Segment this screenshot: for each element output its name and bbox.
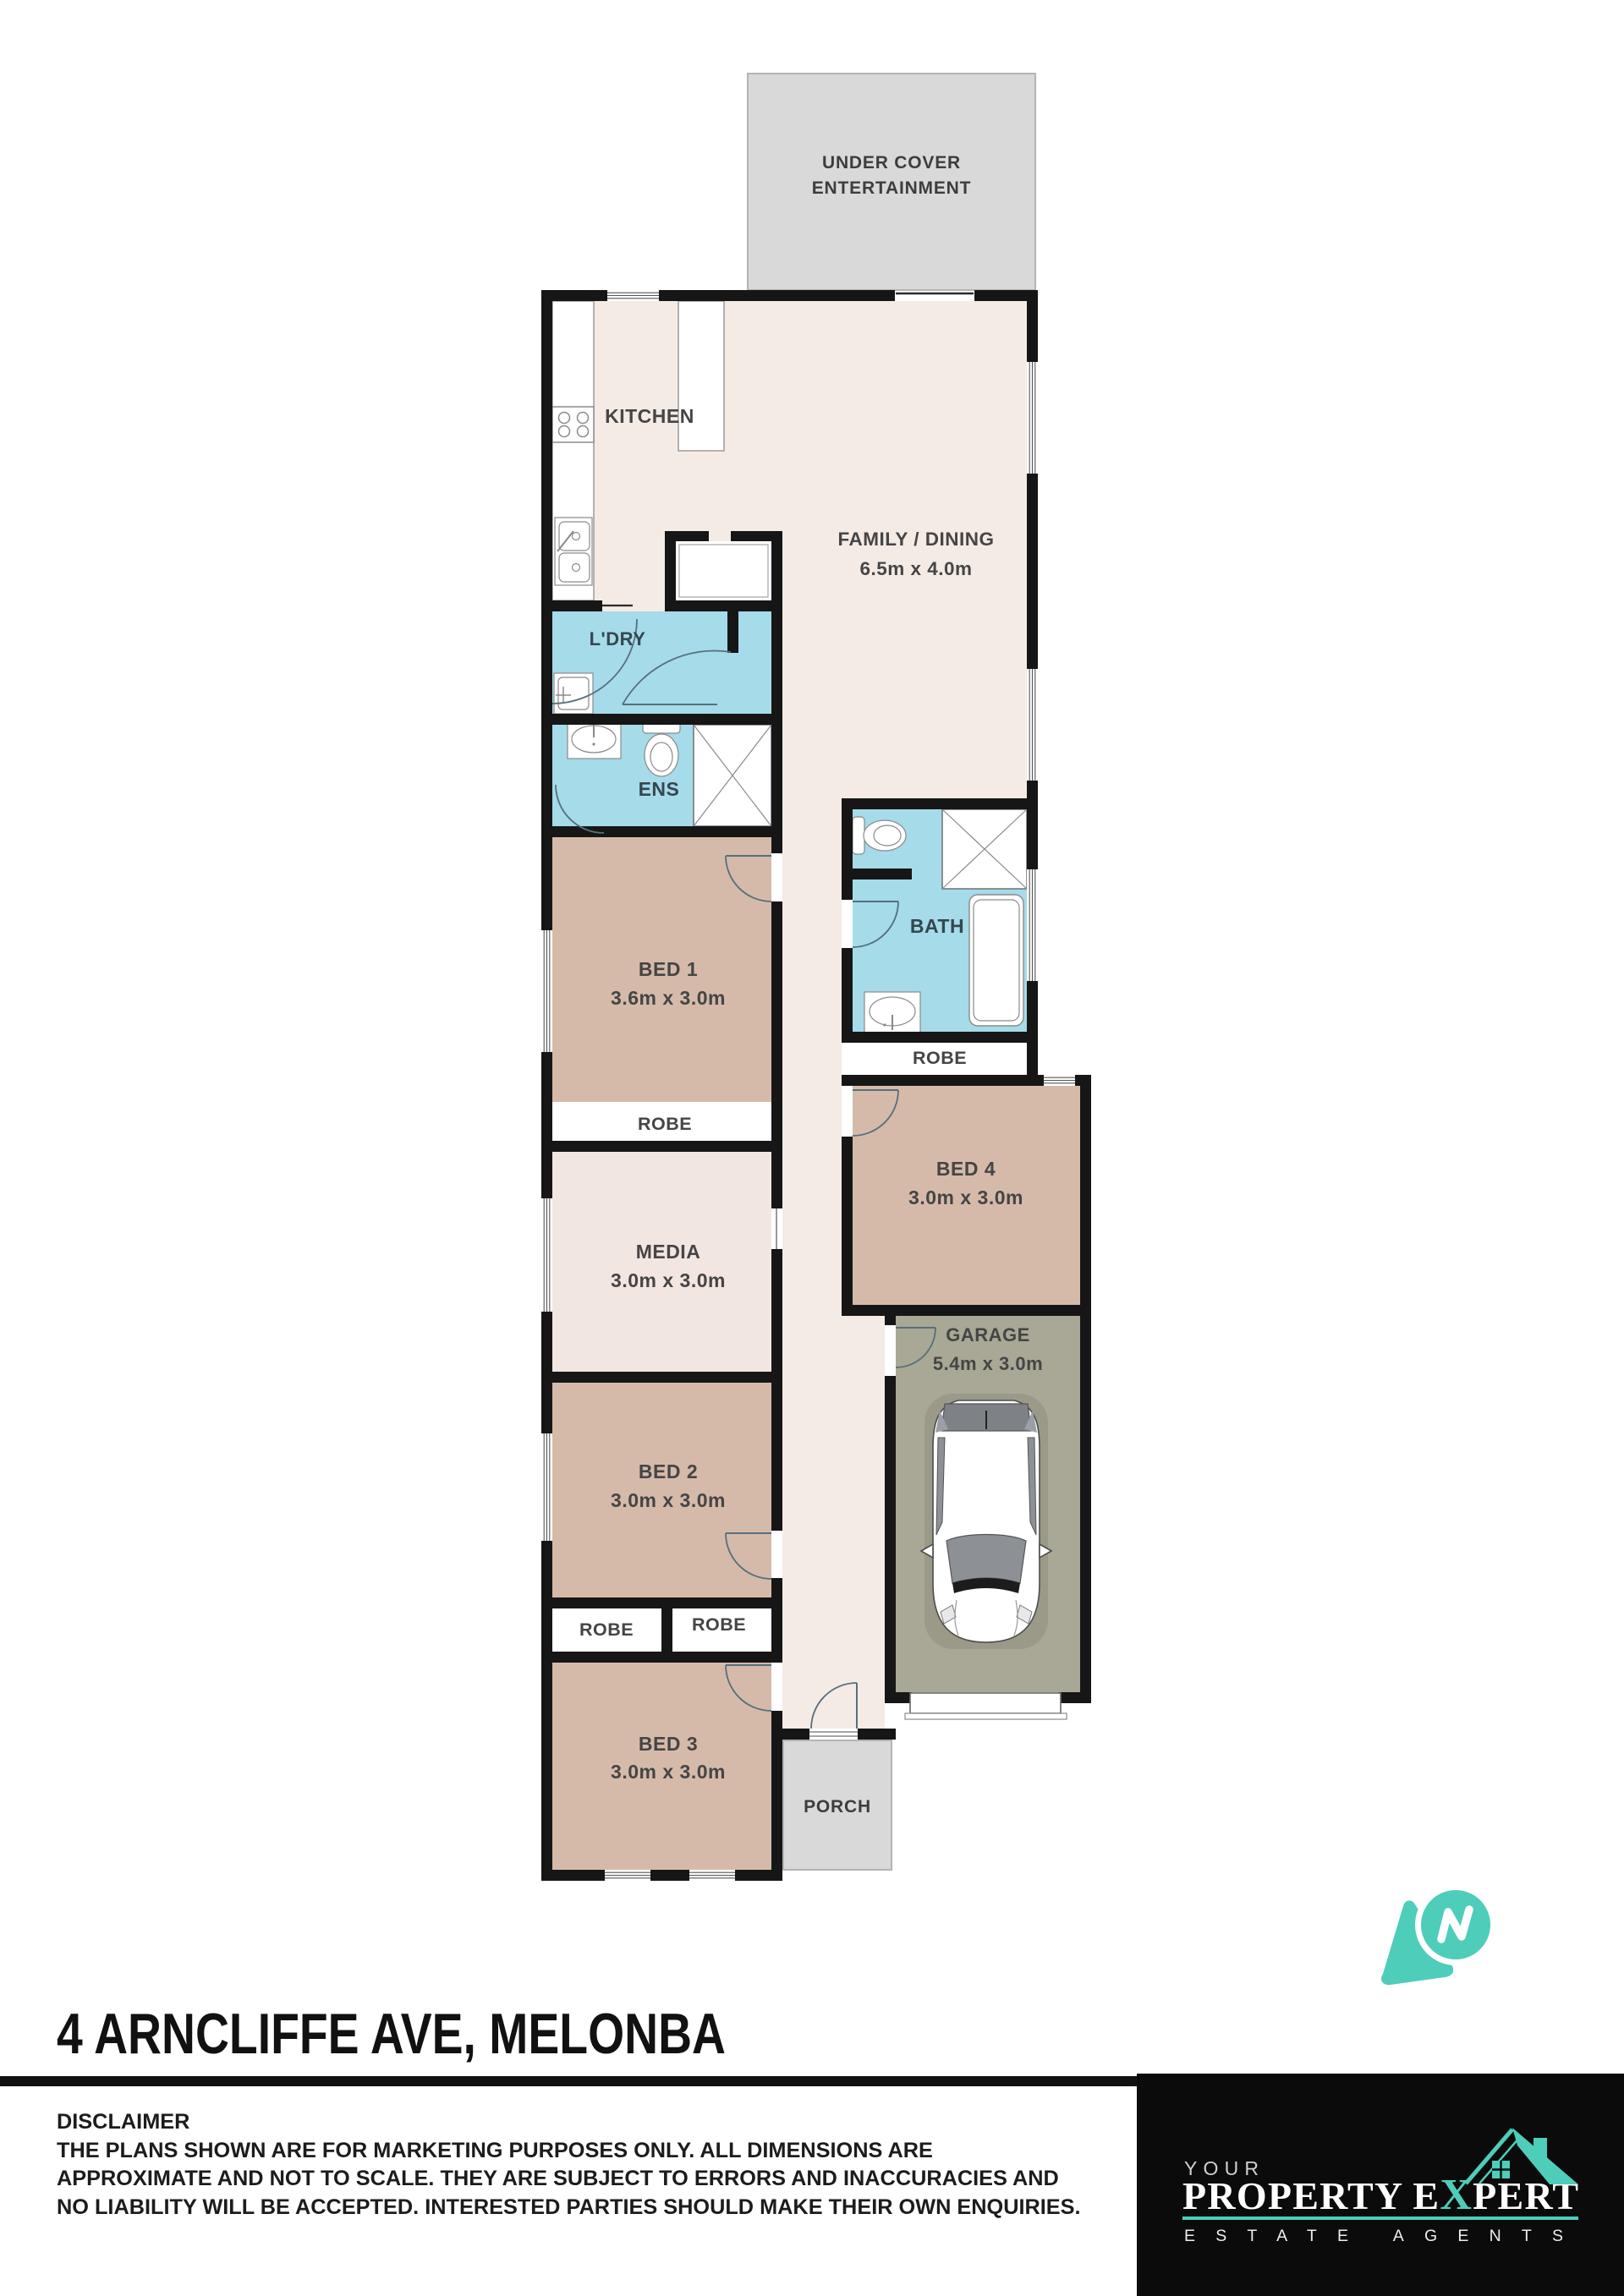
svg-text:BED 1: BED 1 [639,958,698,980]
svg-text:BATH: BATH [910,915,964,937]
svg-text:DISCLAIMER: DISCLAIMER [57,2110,189,2134]
svg-text:L'DRY: L'DRY [590,628,646,649]
svg-text:PROPERTY EXPERT: PROPERTY EXPERT [1182,2171,1578,2219]
svg-text:ROBE: ROBE [692,1614,746,1635]
svg-text:3.0m x 3.0m: 3.0m x 3.0m [908,1186,1023,1208]
svg-text:5.4m x 3.0m: 5.4m x 3.0m [933,1353,1043,1374]
svg-text:BED 4: BED 4 [936,1158,996,1180]
svg-text:GARAGE: GARAGE [946,1324,1030,1345]
svg-text:ENTERTAINMENT: ENTERTAINMENT [812,178,972,198]
svg-text:KITCHEN: KITCHEN [605,405,694,427]
svg-text:PORCH: PORCH [804,1797,871,1817]
svg-text:3.0m x 3.0m: 3.0m x 3.0m [611,1489,726,1511]
svg-text:4 ARNCLIFFE AVE, MELONBA: 4 ARNCLIFFE AVE, MELONBA [57,2002,726,2066]
svg-text:APPROXIMATE AND NOT TO SCALE.: APPROXIMATE AND NOT TO SCALE. THEY ARE S… [57,2167,1059,2190]
svg-text:ENS: ENS [639,778,680,800]
svg-text:BED 2: BED 2 [639,1460,698,1482]
svg-text:3.0m x 3.0m: 3.0m x 3.0m [611,1761,726,1783]
svg-text:NO LIABILITY WILL BE ACCEPTED.: NO LIABILITY WILL BE ACCEPTED. INTERESTE… [57,2195,1081,2219]
svg-text:FAMILY / DINING: FAMILY / DINING [837,529,994,550]
svg-text:ROBE: ROBE [579,1619,634,1640]
svg-text:THE PLANS SHOWN ARE FOR MARKET: THE PLANS SHOWN ARE FOR MARKETING PURPOS… [57,2139,933,2162]
svg-text:3.0m x 3.0m: 3.0m x 3.0m [611,1269,726,1291]
svg-text:ROBE: ROBE [638,1114,692,1134]
svg-text:MEDIA: MEDIA [636,1241,701,1263]
svg-text:3.6m x 3.0m: 3.6m x 3.0m [611,987,726,1009]
svg-text:6.5m x 4.0m: 6.5m x 4.0m [859,558,972,579]
svg-text:ROBE: ROBE [913,1048,967,1068]
svg-text:BED 3: BED 3 [639,1733,698,1755]
svg-text:UNDER COVER: UNDER COVER [822,153,961,173]
